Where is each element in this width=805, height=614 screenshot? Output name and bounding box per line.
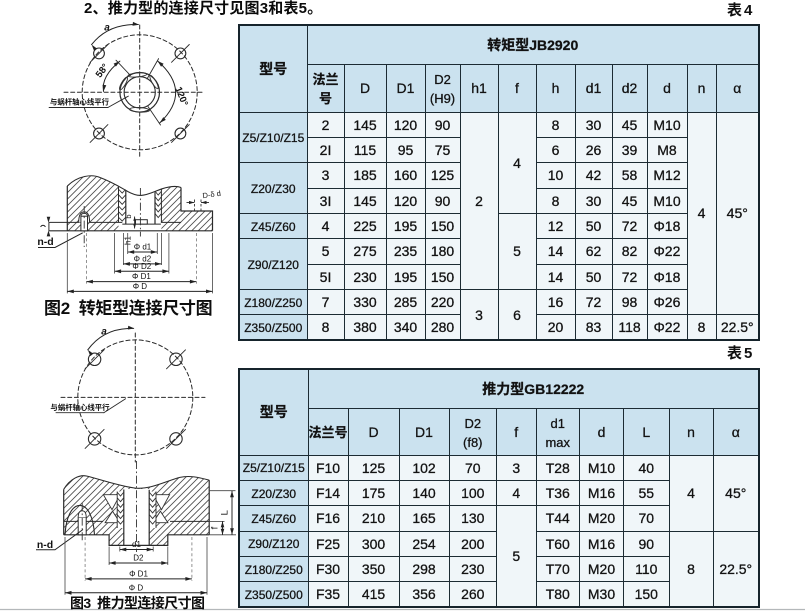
- svg-text:Φ D: Φ D: [129, 583, 144, 592]
- svg-text:58°: 58°: [94, 62, 112, 80]
- svg-text:Φ D2: Φ D2: [132, 262, 151, 271]
- svg-text:Φ D1: Φ D1: [132, 272, 151, 281]
- svg-text:D2: D2: [133, 554, 144, 563]
- svg-text:h1: h1: [124, 236, 133, 245]
- svg-text:b: b: [124, 214, 133, 218]
- svg-text:Φ D1: Φ D1: [129, 569, 148, 578]
- svg-text:a: a: [101, 327, 107, 338]
- svg-text:L: L: [220, 510, 231, 515]
- svg-text:D-δ d: D-δ d: [202, 189, 221, 200]
- svg-text:与蜗杆轴心线平行: 与蜗杆轴心线平行: [50, 97, 110, 108]
- svg-text:d1: d1: [132, 540, 141, 549]
- svg-text:n-d: n-d: [37, 539, 53, 551]
- svg-text:Φ d1: Φ d1: [134, 243, 152, 252]
- svg-text:Φ D: Φ D: [133, 282, 148, 291]
- svg-text:f: f: [210, 526, 221, 529]
- svg-text:a: a: [104, 23, 110, 34]
- svg-text:n-d: n-d: [37, 236, 53, 248]
- svg-text:与蜗杆轴心线平行: 与蜗杆轴心线平行: [50, 402, 110, 413]
